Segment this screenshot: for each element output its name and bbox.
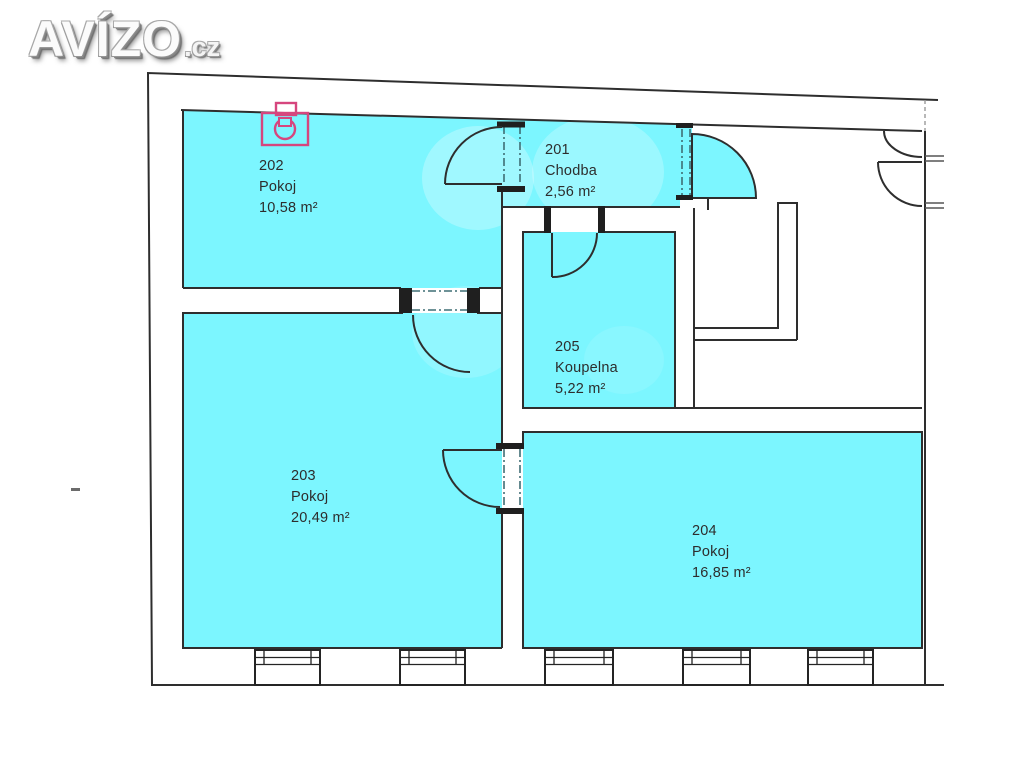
- logo-tld-text: .cz: [184, 32, 220, 62]
- room-204-label: 204 Pokoj 16,85 m²: [692, 521, 751, 584]
- window-symbol: [255, 650, 320, 685]
- room-number: 205: [555, 337, 618, 358]
- window-symbol: [400, 650, 465, 685]
- entrance-door-swing: [692, 134, 756, 198]
- room-205-label: 205 Koupelna 5,22 m²: [555, 337, 618, 400]
- stray-dash-mark: [71, 488, 80, 491]
- room-name: Koupelna: [555, 358, 618, 379]
- window-symbol: [545, 650, 613, 685]
- floor-plan-page: 201 Chodba 2,56 m² 202 Pokoj 10,58 m² 20…: [0, 0, 1024, 774]
- room-area: 10,58 m²: [259, 198, 318, 219]
- room-number: 201: [545, 140, 597, 161]
- room-number: 203: [291, 466, 350, 487]
- room-name: Pokoj: [259, 177, 318, 198]
- logo-brand-text: AVÍZO: [28, 11, 182, 67]
- door-arc-right-b: [878, 162, 922, 206]
- room-number: 204: [692, 521, 751, 542]
- door-arc-right-a: [884, 131, 922, 157]
- room-202-label: 202 Pokoj 10,58 m²: [259, 156, 318, 219]
- window-symbol: [683, 650, 750, 685]
- room-name: Pokoj: [291, 487, 350, 508]
- room-201-label: 201 Chodba 2,56 m²: [545, 140, 597, 203]
- room-203-label: 203 Pokoj 20,49 m²: [291, 466, 350, 529]
- room-area: 5,22 m²: [555, 379, 618, 400]
- room-area: 16,85 m²: [692, 563, 751, 584]
- room-area: 2,56 m²: [545, 182, 597, 203]
- windows: [255, 650, 873, 685]
- room-area: 20,49 m²: [291, 508, 350, 529]
- window-symbol: [808, 650, 873, 685]
- room-name: Pokoj: [692, 542, 751, 563]
- avizo-logo: AVÍZO.cz: [28, 10, 220, 68]
- floor-plan-drawing: [0, 0, 1024, 774]
- room-number: 202: [259, 156, 318, 177]
- room-name: Chodba: [545, 161, 597, 182]
